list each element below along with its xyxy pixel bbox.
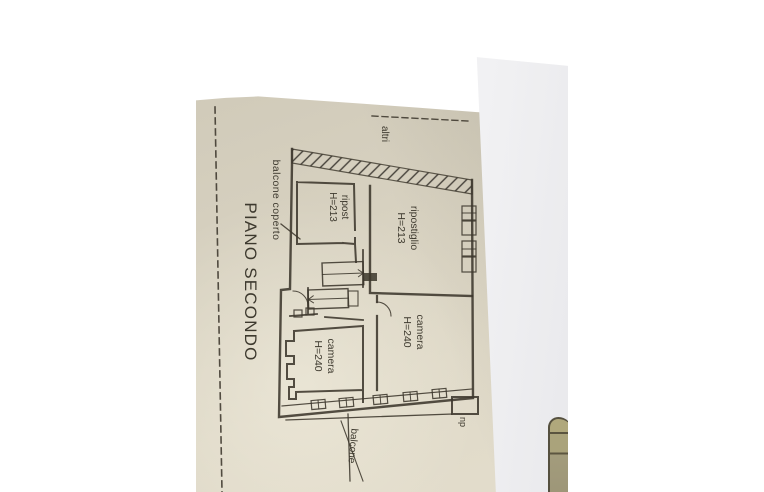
svg-text:balcone coperto: balcone coperto — [270, 160, 282, 241]
svg-text:camera: camera — [414, 314, 426, 349]
balcony-lines — [286, 414, 452, 481]
label-piano-secondo: PIANO SECONDO — [241, 202, 260, 361]
label-camera-left: camera H=240 — [312, 338, 337, 373]
svg-text:ripost: ripost — [339, 195, 350, 220]
right-wall-windows — [462, 206, 476, 272]
label-altri: altri — [379, 126, 390, 142]
hatched-wall-band — [292, 149, 472, 194]
svg-text:H=213: H=213 — [395, 212, 407, 243]
svg-text:H=240: H=240 — [312, 340, 324, 371]
label-ripost: ripost H=213 — [327, 192, 350, 222]
drawing-fragment-arch — [548, 417, 568, 492]
stairs — [308, 262, 364, 309]
photo-canvas: PIANO SECONDO balcone coperto altri ripo… — [0, 0, 764, 492]
svg-text:camera: camera — [325, 338, 337, 373]
label-balcone-coperto: balcone coperto — [270, 160, 282, 241]
svg-text:H=240: H=240 — [401, 316, 413, 347]
photo-of-floorplan: PIANO SECONDO balcone coperto altri ripo… — [196, 0, 568, 492]
label-balcone: balcone — [345, 428, 359, 464]
svg-text:H=213: H=213 — [327, 192, 338, 222]
svg-text:ripostiglio: ripostiglio — [408, 206, 420, 251]
svg-text:altri: altri — [379, 126, 390, 142]
page-title: PIANO SECONDO — [241, 202, 260, 361]
label-np: np — [458, 417, 468, 427]
svg-text:balcone: balcone — [345, 428, 359, 464]
svg-text:np: np — [458, 417, 468, 427]
label-camera-right: camera H=240 — [401, 314, 426, 349]
label-ripostiglio: ripostiglio H=213 — [395, 206, 420, 251]
